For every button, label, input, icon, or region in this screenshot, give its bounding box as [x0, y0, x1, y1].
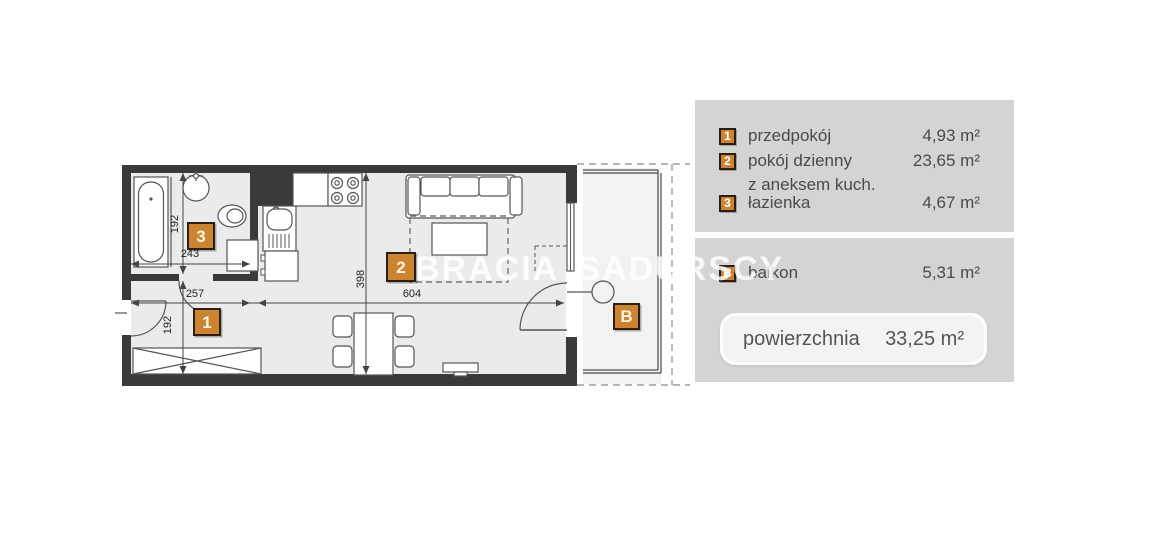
dim-label-living-height: 398 — [355, 259, 369, 299]
room-badge-balcony: B — [613, 303, 640, 330]
kitchen-counter — [293, 173, 328, 206]
legend-badge-2: 2 — [719, 153, 736, 170]
wardrobe — [133, 348, 261, 374]
legend-room-area: 23,65 m² — [913, 151, 980, 171]
total-area-value: 33,25 m² — [885, 328, 964, 351]
room-badge-1: 1 — [193, 308, 221, 336]
balcony-area: 5,31 m² — [922, 263, 980, 283]
page: 1 2 3 B 192 243 257 192 398 604 1 przedp… — [0, 0, 1170, 541]
legend-room-name: pokój dzienny — [748, 151, 852, 171]
legend-row-1: 1 przedpokój 4,93 m² — [719, 125, 980, 147]
kitchen-sink — [263, 206, 296, 251]
dim-label-living-width: 604 — [387, 288, 437, 300]
dim-label-hall-width: 257 — [170, 288, 220, 300]
legend-badge-3: 3 — [719, 195, 736, 212]
legend-room-area: 4,93 m² — [922, 126, 980, 146]
dim-label-hall-height: 192 — [162, 305, 176, 345]
total-area-box: powierzchnia 33,25 m² — [720, 313, 987, 365]
legend-badge-1: 1 — [719, 128, 736, 145]
total-area-label: powierzchnia — [743, 328, 860, 351]
dim-label-bath-height: 192 — [169, 204, 183, 244]
stove — [328, 173, 362, 206]
legend-panel: 1 przedpokój 4,93 m² 2 pokój dzienny 23,… — [695, 100, 1014, 232]
room-badge-3: 3 — [187, 222, 215, 250]
legend-room-name: przedpokój — [748, 126, 831, 146]
legend-row-3: 3 łazienka 4,67 m² — [719, 192, 980, 214]
toilet — [218, 205, 246, 227]
legend-room-area: 4,67 m² — [922, 193, 980, 213]
sofa — [406, 175, 522, 218]
watermark: BRACIA SADURSCY — [415, 250, 784, 289]
fridge — [261, 251, 298, 281]
legend-room-name: łazienka — [748, 193, 810, 213]
legend-row-2: 2 pokój dzienny 23,65 m² — [719, 150, 980, 172]
room-badge-2: 2 — [386, 252, 416, 282]
